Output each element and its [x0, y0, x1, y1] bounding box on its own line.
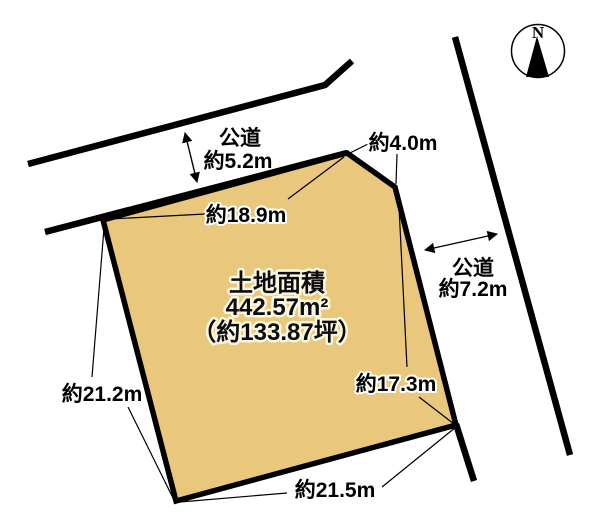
- leader-line-left-up: [92, 228, 104, 377]
- road-right-name-label: 公道: [452, 256, 494, 280]
- road-width-arrow-right: [425, 234, 497, 250]
- dim-top-edge-label: 約18.9m: [206, 203, 287, 227]
- road-top-name-label: 公道: [219, 126, 261, 150]
- dim-bottom-edge-label: 約21.5m: [295, 478, 376, 502]
- compass: N: [512, 23, 565, 78]
- area-title-label: 土地面積: [229, 270, 325, 297]
- top-road-line: [28, 61, 352, 164]
- right-road-edge-extension: [456, 424, 474, 481]
- dim-left-edge-label: 約21.2m: [62, 382, 143, 406]
- leader-line-corner-down: [396, 154, 397, 184]
- road-width-arrow-top: [185, 133, 197, 182]
- right-road-line: [455, 37, 570, 455]
- leader-line-corner-left: [350, 144, 368, 153]
- area-tsubo-label: （約133.87坪）: [192, 318, 361, 346]
- plot-diagram-canvas: 公道 約5.2m 公道 約7.2m 約18.9m 約4.0m 約17.3m 約2…: [0, 0, 600, 525]
- road-right-width-label: 約7.2m: [439, 277, 508, 301]
- land-plot-diagram: 公道 約5.2m 公道 約7.2m 約18.9m 約4.0m 約17.3m 約2…: [0, 0, 600, 525]
- dim-right-edge-label: 約17.3m: [356, 372, 437, 396]
- area-m2-label: 442.57m²: [226, 294, 329, 321]
- road-top-width-label: 約5.2m: [204, 149, 273, 173]
- compass-north-label: N: [532, 23, 545, 42]
- dim-corner-cut-label: 約4.0m: [369, 131, 438, 155]
